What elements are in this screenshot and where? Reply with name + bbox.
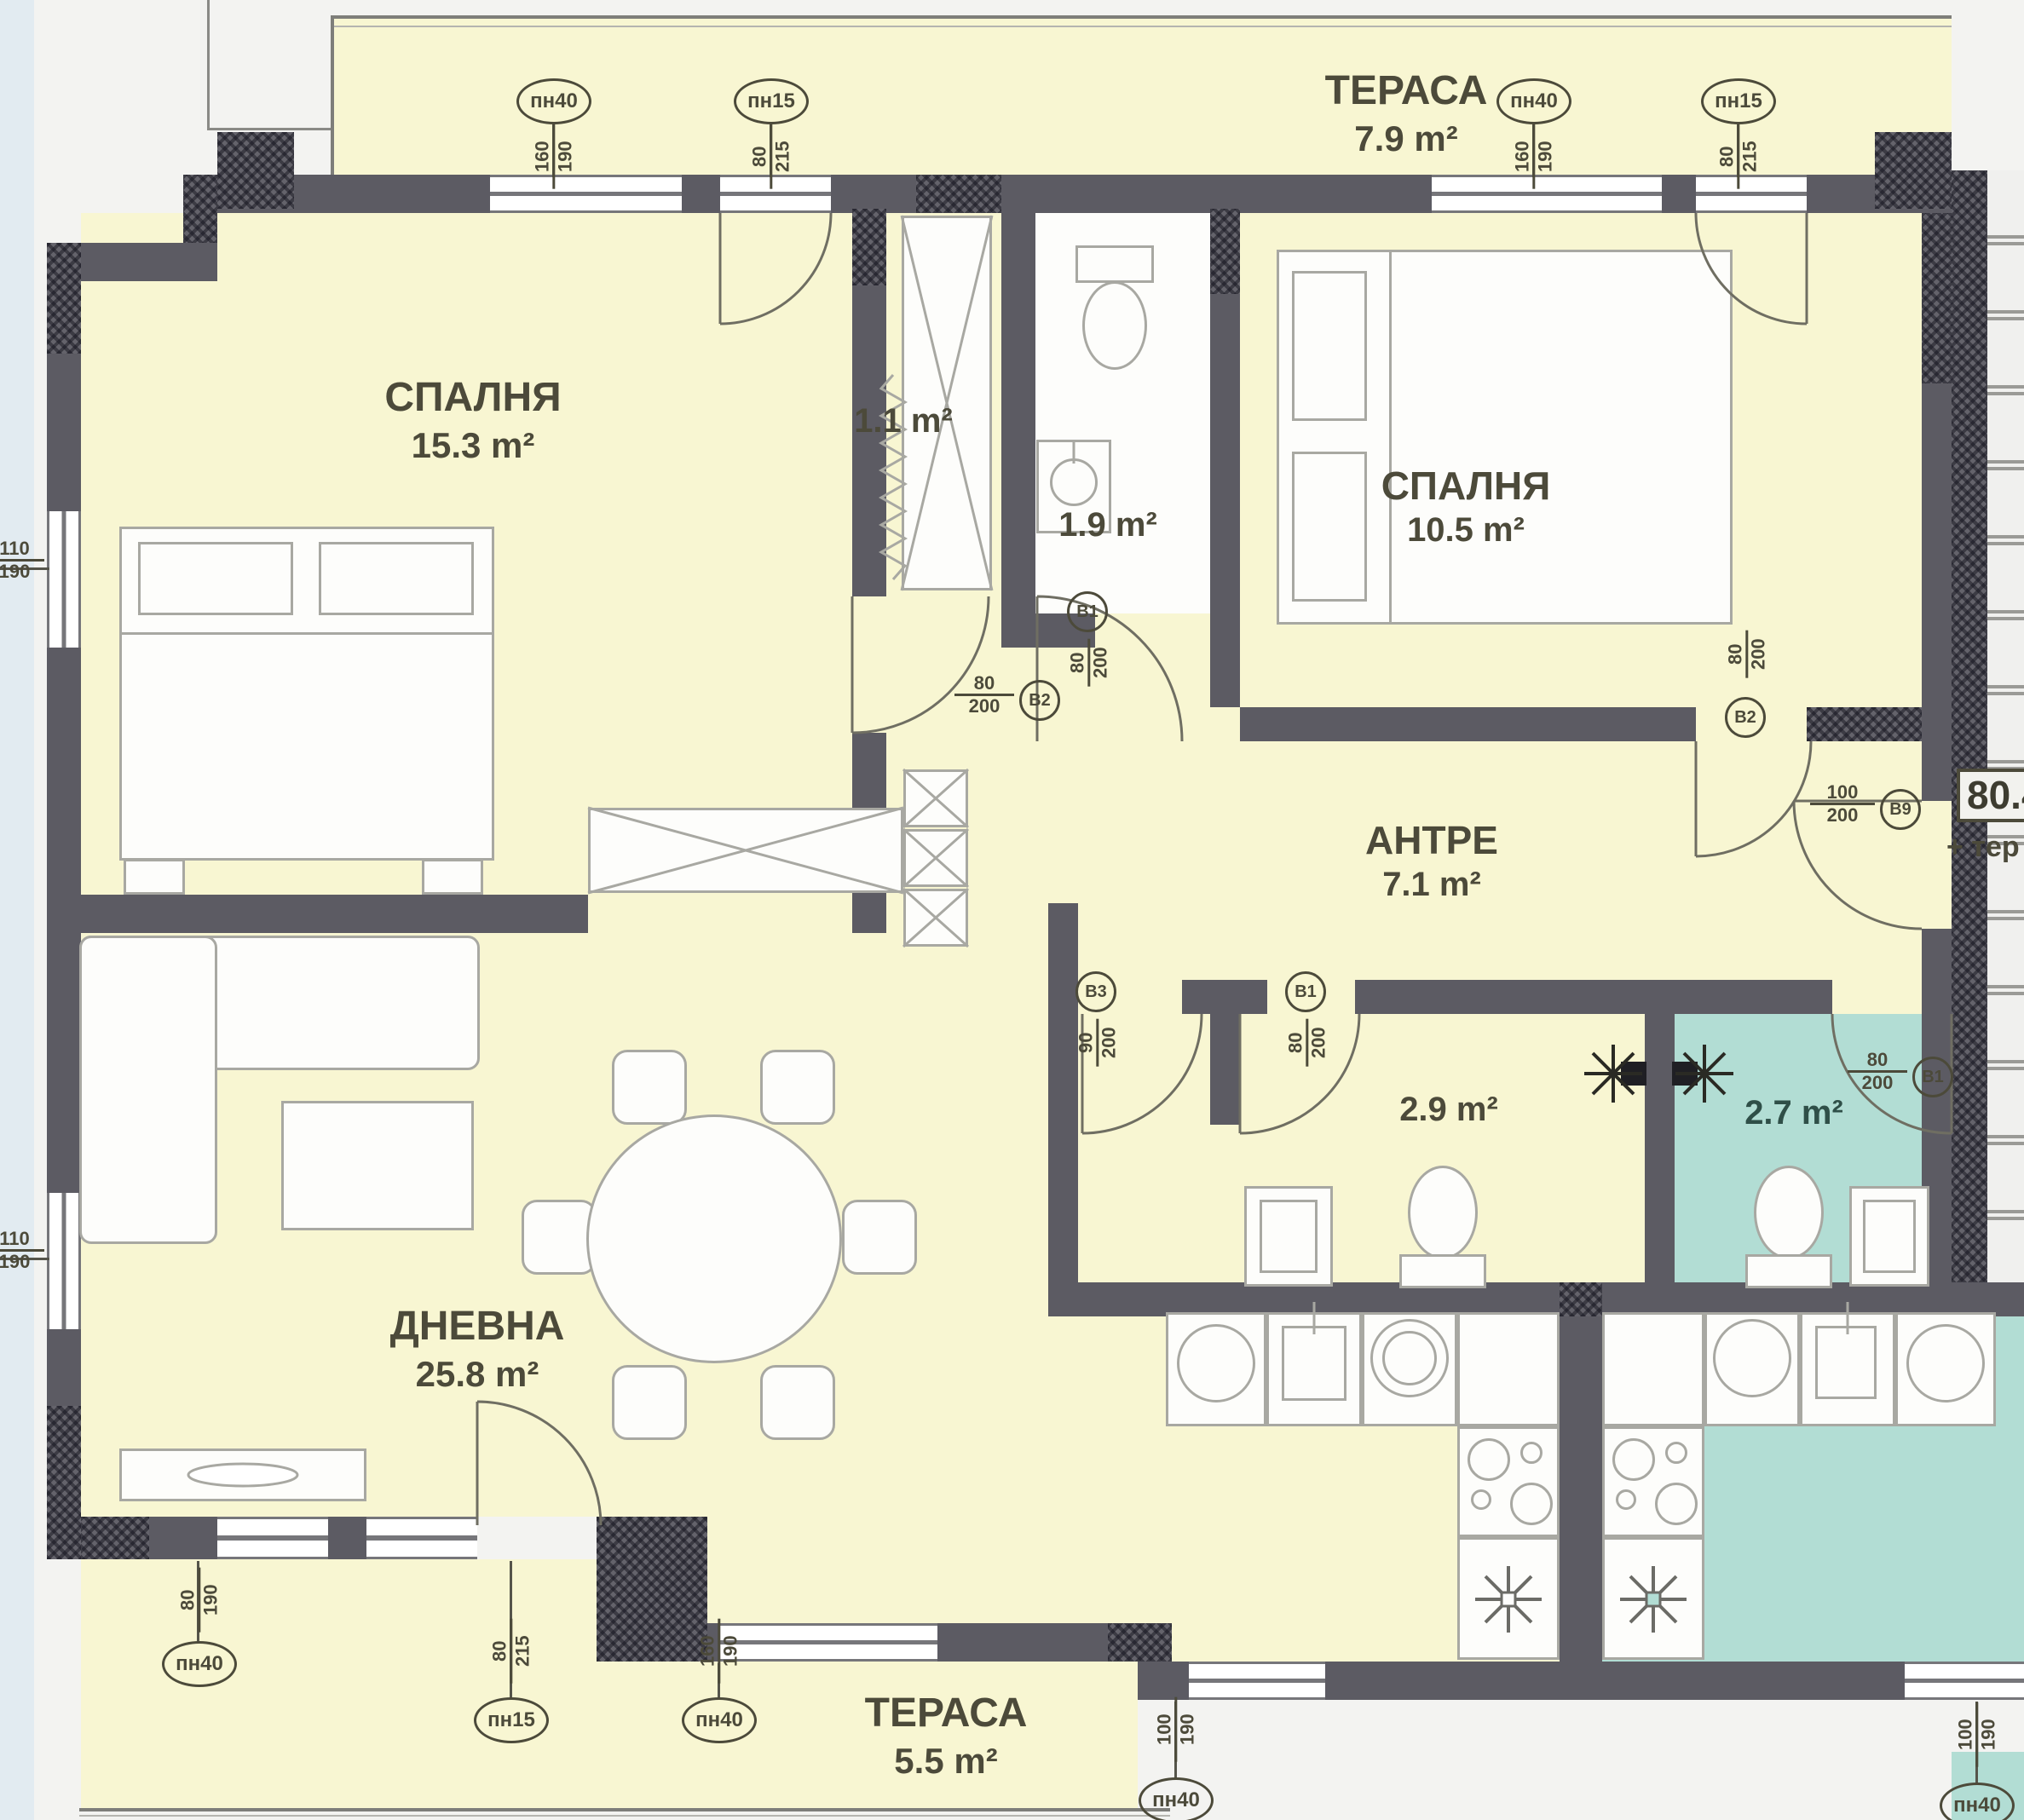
plan-linework bbox=[0, 0, 2024, 1820]
door-code: В1 bbox=[1912, 1057, 1953, 1097]
window-dim: 100190 bbox=[1955, 1702, 1998, 1767]
window-dim: 160190 bbox=[697, 1619, 741, 1684]
room-label-closet: 1.1 m² bbox=[818, 400, 989, 442]
room-label-neighbor-bathroom: 2.7 m² bbox=[1700, 1092, 1888, 1134]
room-label-wc: 1.9 m² bbox=[1014, 504, 1202, 546]
door-code: В9 bbox=[1880, 789, 1921, 830]
window-tag: пн15 bbox=[474, 1697, 549, 1743]
door-code: В1 bbox=[1285, 971, 1326, 1012]
window-dim: 100190 bbox=[1154, 1697, 1197, 1762]
door-code: В2 bbox=[1725, 697, 1766, 738]
room-label-bedroom1: СПАЛНЯ 15.3 m² bbox=[281, 373, 665, 467]
floor-plan: пн40 160190 пн15 80215 пн40 160190 пн15 … bbox=[0, 0, 2024, 1820]
window-dim: 80215 bbox=[489, 1619, 533, 1684]
door-dim: 100200 bbox=[1810, 782, 1875, 826]
window-dim: 80215 bbox=[1716, 124, 1760, 189]
door-dim: 80200 bbox=[954, 673, 1014, 717]
door-code: В3 bbox=[1075, 971, 1116, 1012]
door-dim: 80200 bbox=[1725, 631, 1768, 678]
window-dim: 110190 bbox=[0, 539, 44, 582]
window-dim: 110190 bbox=[0, 1229, 44, 1272]
room-label-terrace-top: ТЕРАСА 7.9 m² bbox=[1236, 66, 1577, 160]
door-dim: 80200 bbox=[1067, 639, 1110, 687]
window-tag: пн40 bbox=[1139, 1777, 1214, 1820]
window-tag: пн40 bbox=[516, 78, 591, 124]
door-code: В2 bbox=[1019, 680, 1060, 721]
window-tag: пн40 bbox=[682, 1697, 757, 1743]
window-dim: 80190 bbox=[177, 1568, 221, 1633]
window-dim: 160190 bbox=[532, 124, 575, 189]
window-tag: пн15 bbox=[734, 78, 809, 124]
room-label-bathroom: 2.9 m² bbox=[1355, 1089, 1543, 1131]
window-dim: 80215 bbox=[749, 124, 793, 189]
door-dim: 90200 bbox=[1075, 1019, 1119, 1067]
room-label-hallway: АНТРЕ 7.1 m² bbox=[1278, 816, 1585, 906]
total-area-badge: 80.4 bbox=[1957, 769, 2024, 822]
door-code: В1 bbox=[1067, 591, 1108, 632]
room-label-living: ДНЕВНА 25.8 m² bbox=[298, 1302, 656, 1396]
door-dim: 80200 bbox=[1848, 1050, 1907, 1093]
window-tag: пн15 bbox=[1701, 78, 1776, 124]
window-tag: пн40 bbox=[162, 1641, 237, 1687]
door-dim: 80200 bbox=[1285, 1019, 1329, 1067]
room-label-bedroom2: СПАЛНЯ 10.5 m² bbox=[1329, 462, 1602, 551]
total-area-suffix: + тер bbox=[1946, 830, 2024, 865]
room-label-terrace-bottom: ТЕРАСА 5.5 m² bbox=[793, 1689, 1099, 1783]
